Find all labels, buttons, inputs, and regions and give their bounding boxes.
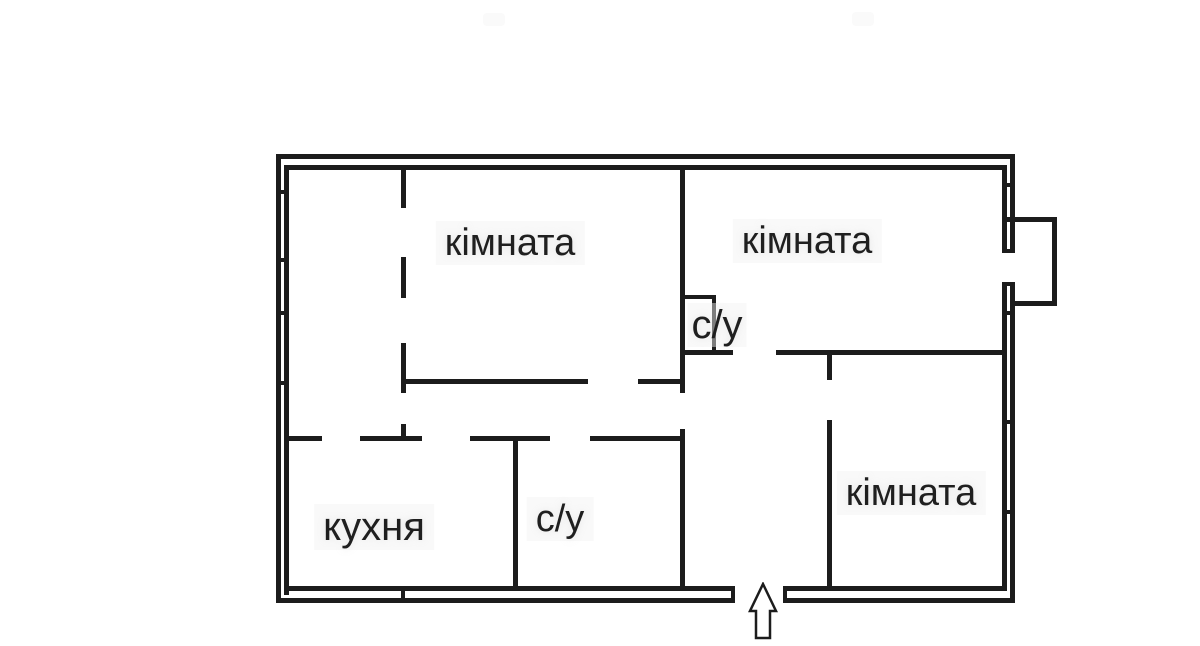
wall-outer-bottom xyxy=(276,598,735,603)
wall-interior xyxy=(287,436,322,441)
window-tick xyxy=(1002,311,1015,315)
wall-outer-right xyxy=(1010,154,1015,253)
wall-inner-top xyxy=(284,165,1007,170)
balcony-wall-bottom xyxy=(1010,301,1057,306)
wall-inner-left xyxy=(284,165,289,595)
scan-smudge xyxy=(852,12,874,26)
bathroom-label-bottom: с/у xyxy=(527,497,594,541)
bathroom-label-top: с/у xyxy=(687,303,746,347)
wall-inner-bottom xyxy=(284,586,735,591)
window-tick xyxy=(1002,420,1015,424)
wall-dashed xyxy=(401,257,406,298)
wall-interior xyxy=(680,350,733,355)
wall-outer-top xyxy=(276,154,1015,159)
wall-interior xyxy=(590,436,682,441)
wall-interior xyxy=(513,438,518,588)
window-tick xyxy=(276,311,289,315)
room-label-top-right: кімната xyxy=(733,219,882,263)
floor-plan: кімната кімната с/у кухня с/у кімната xyxy=(0,0,1200,646)
room-label-top-left: кімната xyxy=(436,221,585,265)
window-tick xyxy=(1002,510,1015,514)
wall-interior xyxy=(638,379,685,384)
wall-inner-bottom xyxy=(783,586,1007,591)
window-tick xyxy=(276,258,289,262)
wall-end-cap xyxy=(1002,282,1015,286)
window-tick xyxy=(276,190,289,194)
kitchen-label: кухня xyxy=(314,504,434,550)
window-tick xyxy=(401,586,405,603)
door-leaf xyxy=(680,295,716,299)
wall-interior xyxy=(470,436,550,441)
wall-interior xyxy=(360,436,422,441)
balcony-wall-right xyxy=(1052,217,1057,306)
window-tick xyxy=(276,381,289,385)
wall-end-cap xyxy=(731,586,735,603)
wall-interior xyxy=(680,165,685,393)
entrance-arrow-icon xyxy=(747,582,779,640)
room-label-bottom-right: кімната xyxy=(837,471,986,515)
wall-inner-right xyxy=(1002,165,1007,253)
wall-interior xyxy=(776,350,1004,355)
wall-outer-bottom xyxy=(783,598,1015,603)
scan-smudge xyxy=(483,13,505,26)
wall-interior xyxy=(827,352,832,380)
wall-inner-right xyxy=(1002,282,1007,590)
window-tick xyxy=(1002,183,1015,187)
wall-interior xyxy=(401,379,588,384)
wall-dashed xyxy=(401,343,406,393)
wall-end-cap xyxy=(783,586,787,603)
wall-outer-right xyxy=(1010,282,1015,603)
wall-dashed xyxy=(401,167,406,208)
wall-interior xyxy=(827,420,832,591)
wall-end-cap xyxy=(1002,249,1015,253)
wall-interior xyxy=(680,429,685,591)
balcony-wall-top xyxy=(1007,217,1057,222)
wall-outer-left xyxy=(276,154,281,603)
